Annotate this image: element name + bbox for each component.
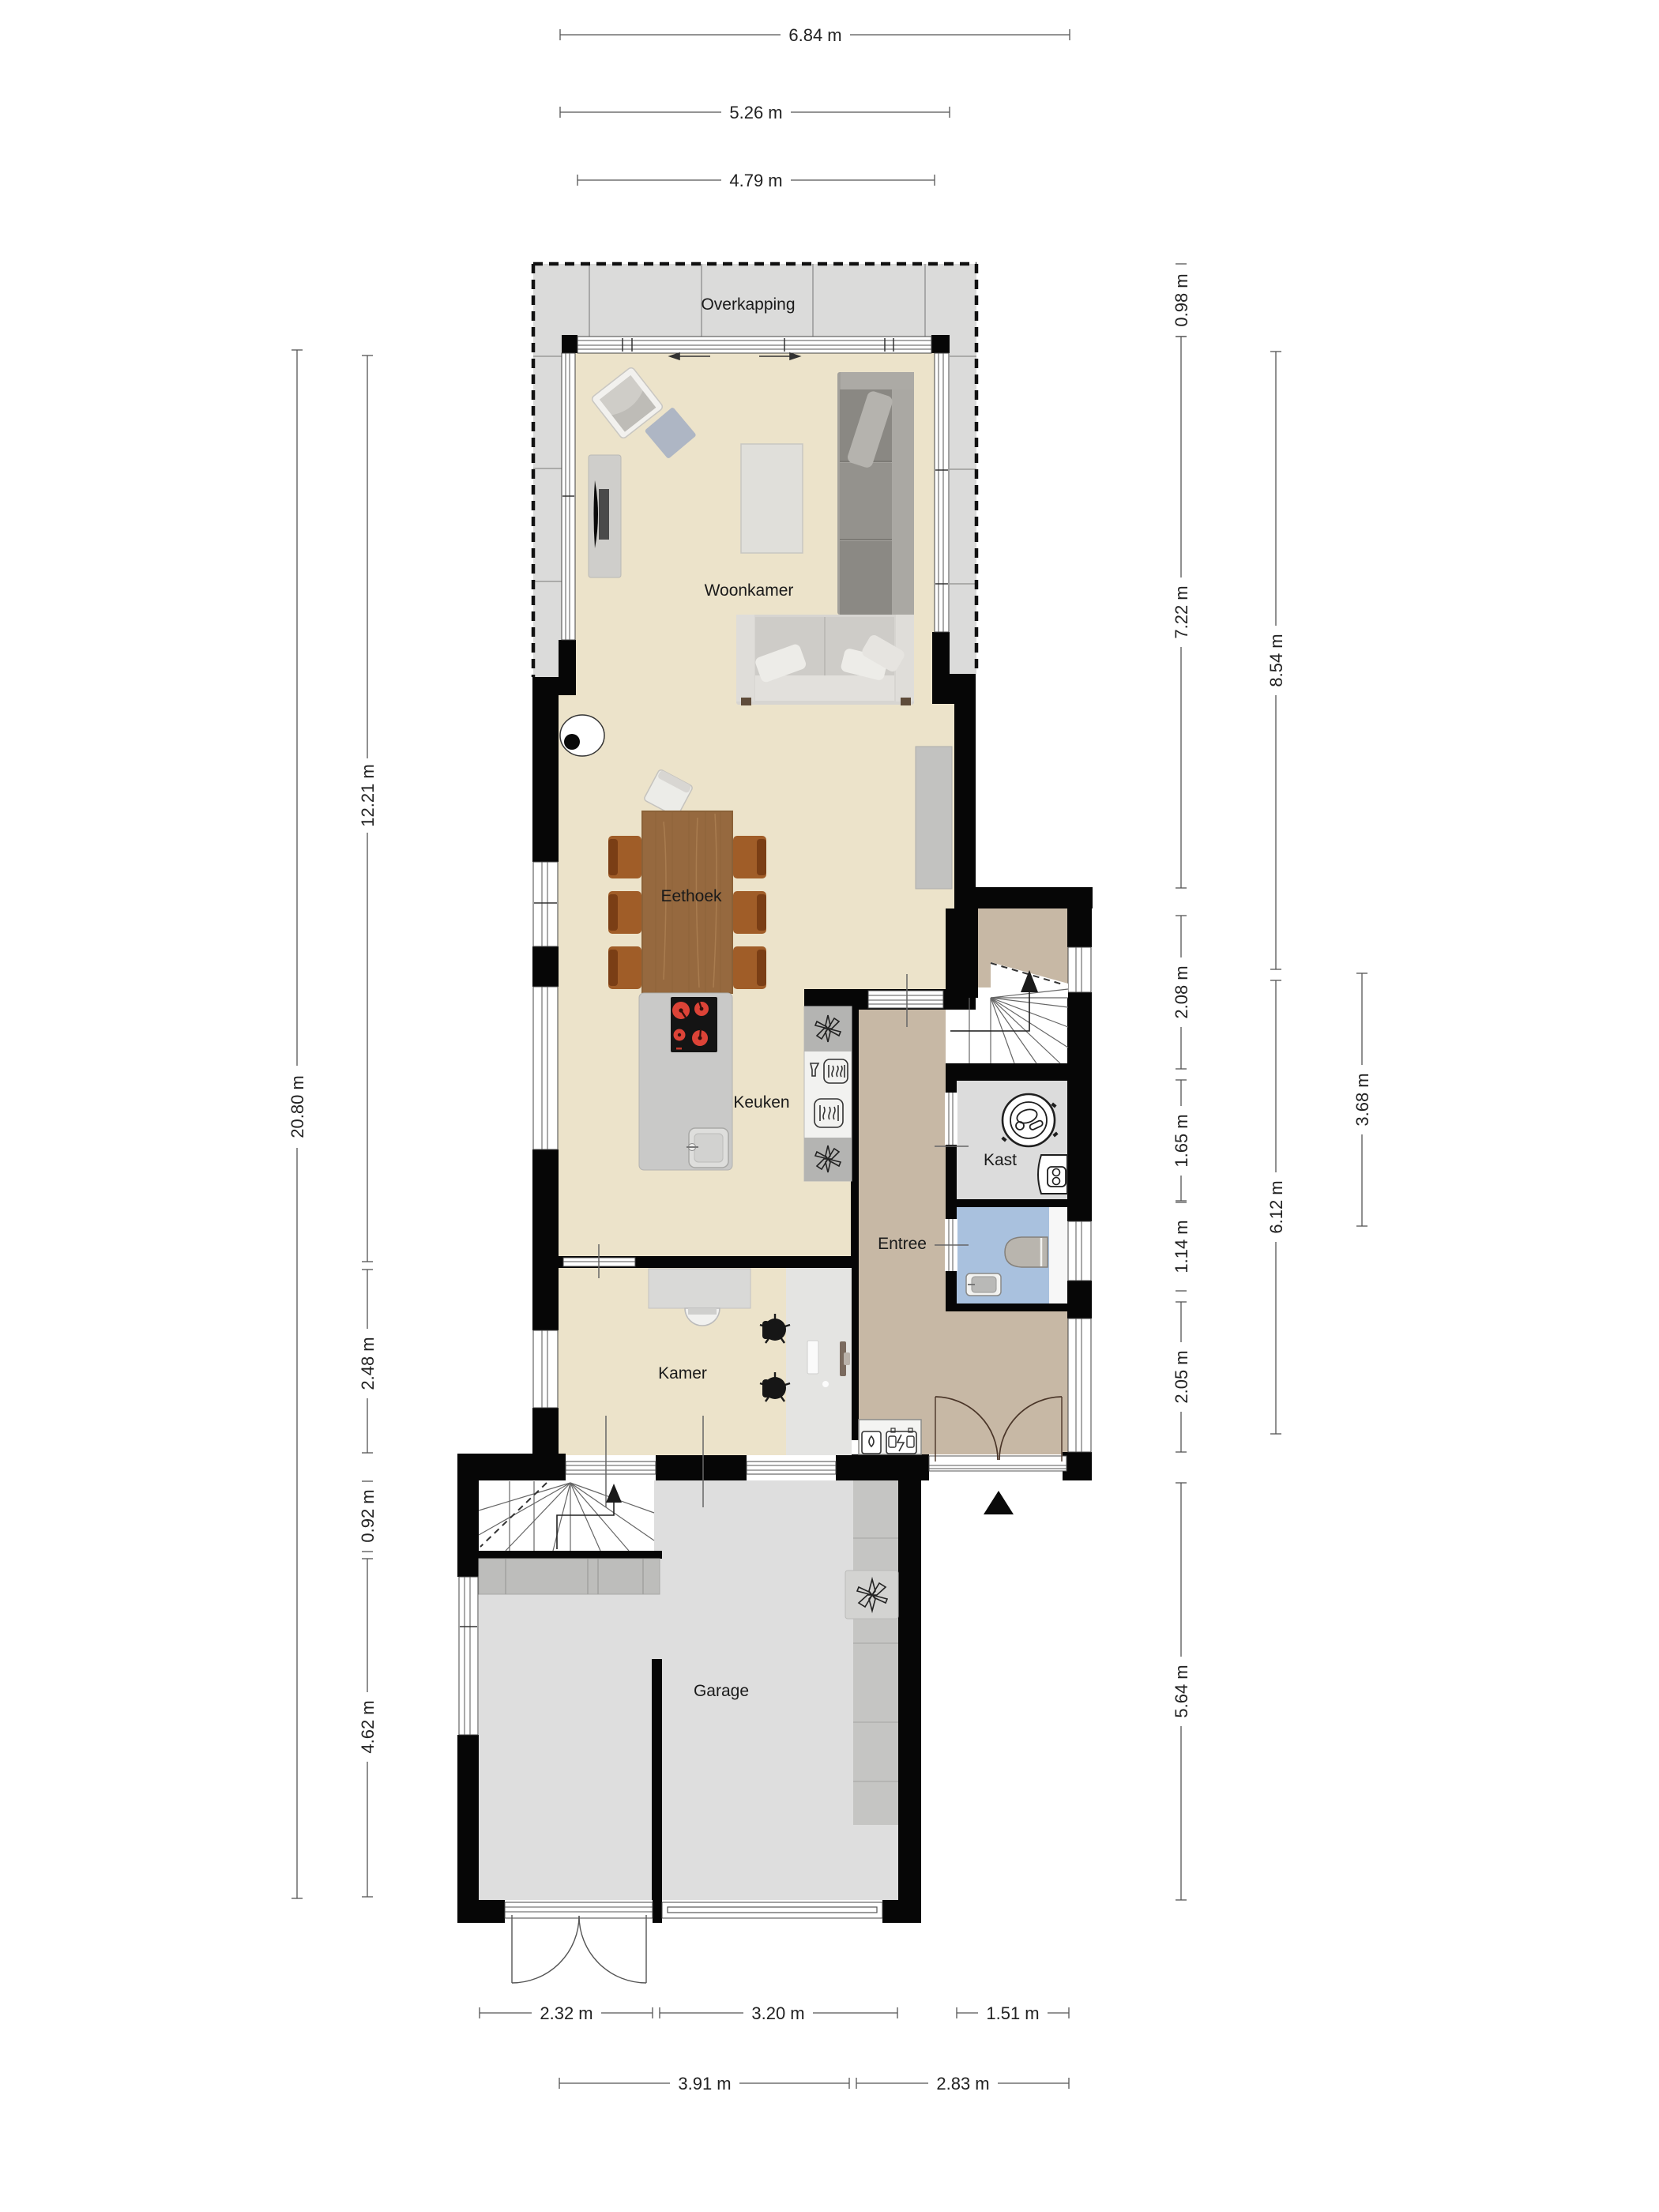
svg-text:2.32 m: 2.32 m xyxy=(540,2003,592,2023)
svg-text:8.54 m: 8.54 m xyxy=(1266,634,1286,687)
svg-text:Garage: Garage xyxy=(694,1682,749,1700)
svg-text:Eethoek: Eethoek xyxy=(660,887,722,905)
svg-text:6.84 m: 6.84 m xyxy=(788,25,841,45)
svg-text:12.21 m: 12.21 m xyxy=(358,764,378,827)
svg-text:Keuken: Keuken xyxy=(733,1093,789,1112)
svg-text:Woonkamer: Woonkamer xyxy=(705,581,794,600)
svg-text:1.51 m: 1.51 m xyxy=(986,2003,1039,2023)
svg-text:6.12 m: 6.12 m xyxy=(1266,1180,1286,1233)
svg-text:0.98 m: 0.98 m xyxy=(1172,273,1191,326)
svg-text:2.08 m: 2.08 m xyxy=(1172,965,1191,1018)
svg-text:3.20 m: 3.20 m xyxy=(751,2003,804,2023)
svg-text:Kamer: Kamer xyxy=(658,1364,707,1382)
svg-text:2.05 m: 2.05 m xyxy=(1172,1350,1191,1403)
svg-text:5.64 m: 5.64 m xyxy=(1172,1665,1191,1717)
svg-text:2.83 m: 2.83 m xyxy=(936,2074,989,2093)
svg-text:20.80 m: 20.80 m xyxy=(288,1075,307,1138)
svg-text:Overkapping: Overkapping xyxy=(701,295,795,314)
svg-text:Entree: Entree xyxy=(878,1235,927,1253)
svg-text:Kast: Kast xyxy=(984,1151,1017,1169)
svg-text:4.62 m: 4.62 m xyxy=(358,1700,378,1753)
svg-text:7.22 m: 7.22 m xyxy=(1172,585,1191,638)
svg-text:3.91 m: 3.91 m xyxy=(678,2074,731,2093)
svg-text:1.65 m: 1.65 m xyxy=(1172,1114,1191,1167)
svg-text:0.92 m: 0.92 m xyxy=(358,1489,378,1542)
svg-text:2.48 m: 2.48 m xyxy=(358,1337,378,1390)
svg-text:1.14 m: 1.14 m xyxy=(1172,1220,1191,1273)
svg-text:5.26 m: 5.26 m xyxy=(729,103,782,122)
svg-text:4.79 m: 4.79 m xyxy=(729,171,782,190)
svg-text:3.68 m: 3.68 m xyxy=(1352,1073,1372,1126)
